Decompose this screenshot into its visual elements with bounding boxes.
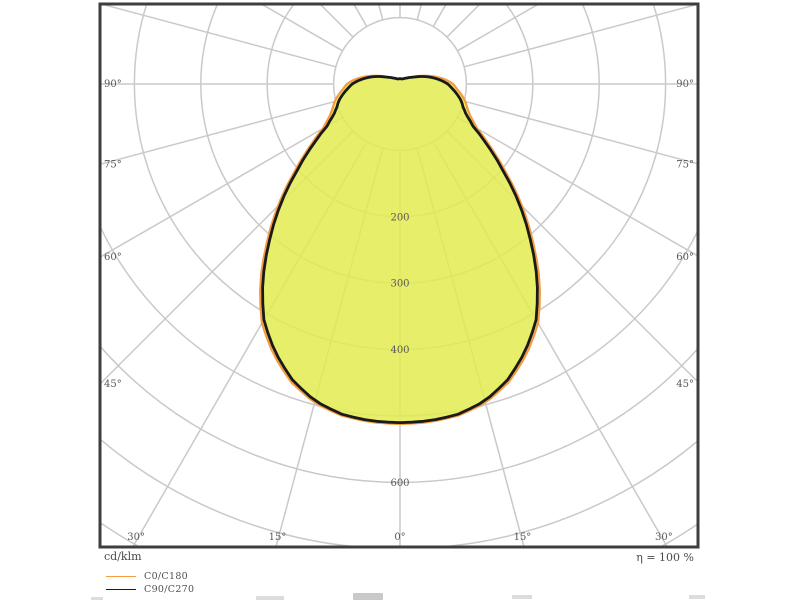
svg-text:75°: 75° xyxy=(104,159,122,170)
legend-line-c0-c180-icon xyxy=(106,576,136,577)
svg-text:300: 300 xyxy=(390,279,409,290)
svg-text:45°: 45° xyxy=(676,379,694,390)
svg-text:400: 400 xyxy=(390,345,409,356)
svg-text:75°: 75° xyxy=(676,159,694,170)
legend: C0/C180 C90/C270 xyxy=(106,570,194,596)
svg-text:60°: 60° xyxy=(676,252,694,263)
legend-line-c90-c270-icon xyxy=(106,589,136,590)
cropped-content-artifact xyxy=(256,596,284,600)
svg-text:30°: 30° xyxy=(655,532,673,543)
svg-text:30°: 30° xyxy=(127,532,145,543)
svg-text:90°: 90° xyxy=(676,79,694,90)
svg-text:600: 600 xyxy=(390,478,409,489)
svg-text:90°: 90° xyxy=(104,79,122,90)
cropped-content-artifact xyxy=(689,595,705,599)
svg-text:200: 200 xyxy=(390,212,409,223)
radial-unit-label: cd/klm xyxy=(104,550,142,563)
efficiency-label: η = 100 % xyxy=(636,551,694,564)
svg-text:15°: 15° xyxy=(269,532,287,543)
legend-item-c90-c270: C90/C270 xyxy=(106,583,194,596)
cropped-content-artifact xyxy=(353,593,383,600)
cropped-content-artifact xyxy=(512,595,532,599)
photometric-diagram-page: 20030040060090°90°75°75°60°60°45°45°30°3… xyxy=(0,0,800,600)
legend-label-c0-c180: C0/C180 xyxy=(144,571,188,582)
svg-text:0°: 0° xyxy=(394,532,405,543)
svg-text:45°: 45° xyxy=(104,379,122,390)
legend-item-c0-c180: C0/C180 xyxy=(106,570,194,583)
svg-text:60°: 60° xyxy=(104,252,122,263)
legend-label-c90-c270: C90/C270 xyxy=(144,584,194,595)
polar-intensity-chart: 20030040060090°90°75°75°60°60°45°45°30°3… xyxy=(0,0,800,600)
svg-text:15°: 15° xyxy=(514,532,532,543)
c0-c180-curve xyxy=(260,76,540,424)
